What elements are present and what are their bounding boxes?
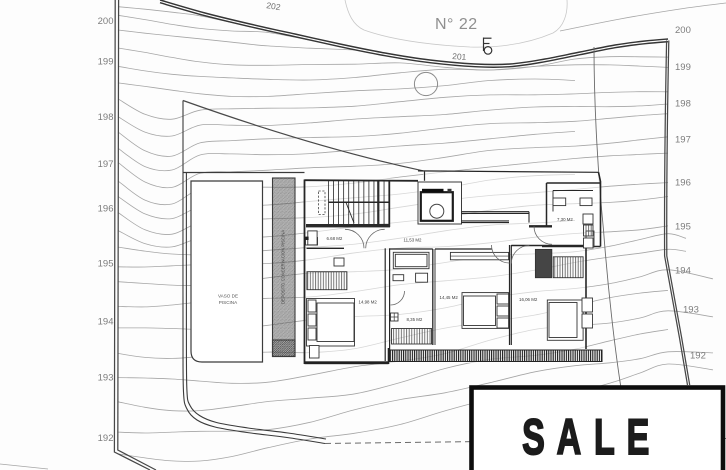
svg-text:195: 195 [98, 259, 114, 270]
svg-text:193: 193 [683, 305, 699, 316]
svg-text:DEPOSITO CONSERVACION PISCINA: DEPOSITO CONSERVACION PISCINA [281, 230, 286, 304]
svg-text:6.68 M2: 6.68 M2 [327, 236, 343, 241]
svg-text:VASO DE: VASO DE [218, 294, 238, 299]
svg-text:14,45 M2: 14,45 M2 [440, 295, 459, 300]
svg-text:198: 198 [98, 112, 114, 123]
svg-text:198: 198 [675, 99, 691, 110]
svg-text:PISCINA: PISCINA [219, 300, 238, 305]
svg-text:11,53 M2: 11,53 M2 [404, 238, 423, 243]
svg-text:200: 200 [675, 25, 691, 36]
svg-text:196: 196 [675, 178, 691, 189]
svg-text:195: 195 [675, 222, 691, 233]
svg-text:200: 200 [98, 16, 114, 27]
svg-text:199: 199 [98, 57, 114, 68]
svg-text:A: A [557, 410, 582, 466]
svg-text:194: 194 [98, 317, 114, 328]
svg-text:193: 193 [98, 373, 114, 384]
svg-text:194: 194 [675, 266, 691, 277]
svg-text:14,98 M2: 14,98 M2 [359, 299, 378, 304]
svg-text:197: 197 [98, 159, 114, 170]
svg-text:7,30 M2: 7,30 M2 [557, 217, 573, 222]
svg-text:199: 199 [675, 62, 691, 73]
svg-text:L: L [594, 410, 615, 466]
svg-text:N° 22: N° 22 [435, 16, 478, 33]
svg-text:196: 196 [98, 204, 114, 215]
svg-text:201: 201 [452, 51, 467, 62]
svg-text:E: E [627, 410, 650, 466]
svg-text:192: 192 [690, 351, 706, 362]
svg-text:S: S [522, 410, 545, 466]
svg-text:8,35 M2: 8,35 M2 [407, 317, 423, 322]
svg-text:197: 197 [675, 135, 691, 146]
svg-text:192: 192 [98, 433, 114, 444]
svg-text:16,06 M2: 16,06 M2 [519, 297, 538, 302]
